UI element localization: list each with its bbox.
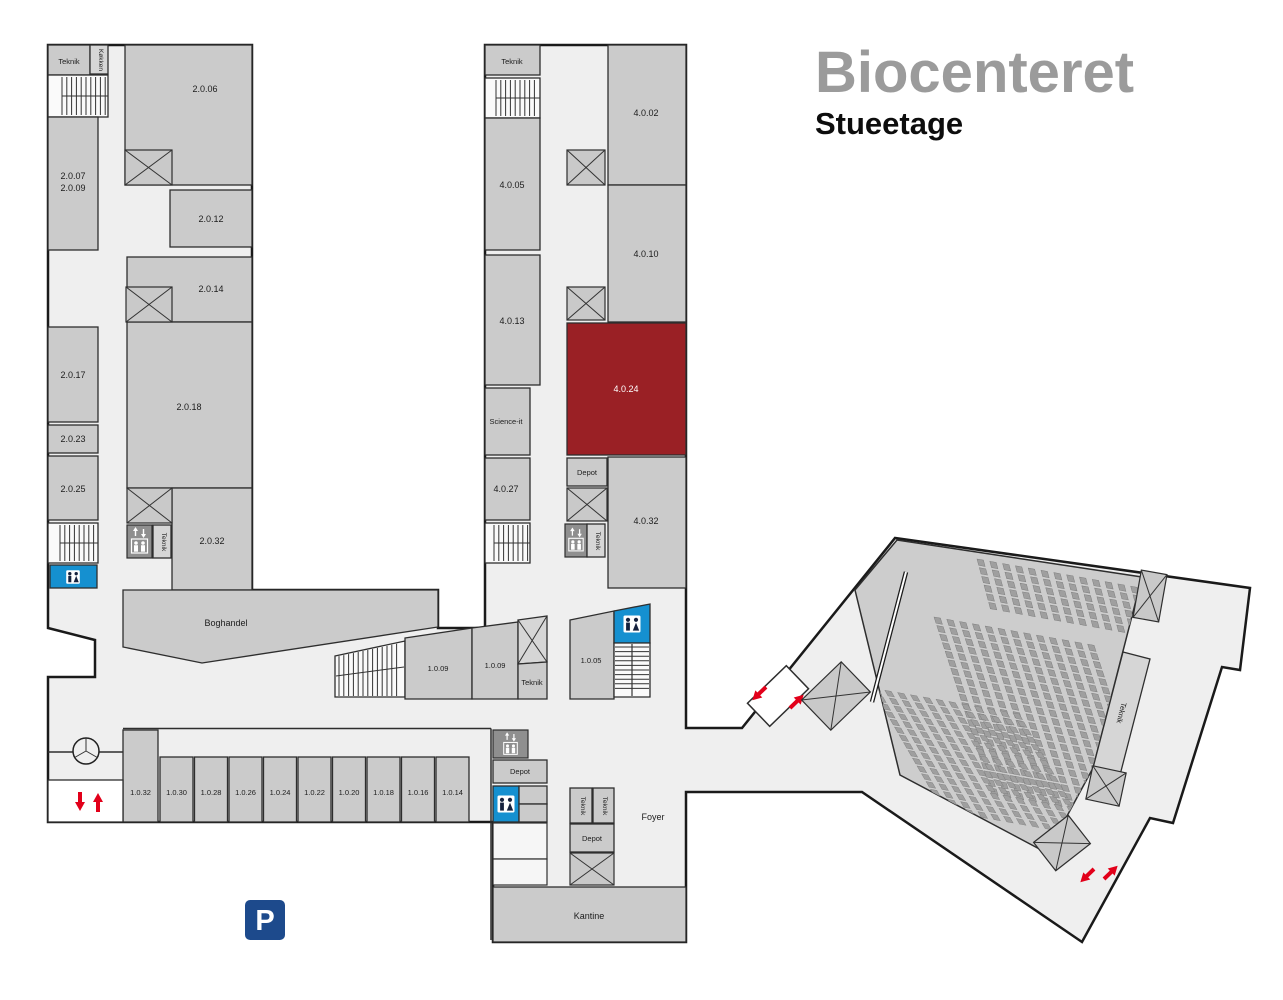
room-label: 1.0.18 xyxy=(373,788,394,797)
label-teknik-band: Teknik xyxy=(521,678,543,687)
label-kokken: Køkken xyxy=(97,49,104,71)
room-small-a xyxy=(519,786,547,804)
label-4005: 4.0.05 xyxy=(499,180,524,190)
room-label: 1.0.28 xyxy=(201,788,222,797)
label-teknik-n2: Teknik xyxy=(501,57,523,66)
room-label: 1.0.14 xyxy=(442,788,463,797)
label-science-it: Science-it xyxy=(490,417,524,426)
room-label: 1.0.24 xyxy=(270,788,291,797)
label-depot-upper: Depot xyxy=(510,767,531,776)
label-1005: 1.0.05 xyxy=(581,656,602,665)
parking-label: P xyxy=(255,905,274,937)
label-2006: 2.0.06 xyxy=(192,84,217,94)
page-title: Biocenteret xyxy=(815,40,1134,105)
floor-plan: 1.0.321.0.301.0.281.0.261.0.241.0.221.0.… xyxy=(0,0,1283,1000)
page-subtitle: Stueetage xyxy=(815,106,963,141)
label-teknik-nw: Teknik xyxy=(58,57,80,66)
label-2025: 2.0.25 xyxy=(60,484,85,494)
label-4024: 4.0.24 xyxy=(613,384,638,394)
label-foyer: Foyer xyxy=(641,812,664,822)
room-small-b xyxy=(519,804,547,822)
label-1009b: 1.0.09 xyxy=(485,661,506,670)
label-4027: 4.0.27 xyxy=(493,484,518,494)
label-4032: 4.0.32 xyxy=(633,516,658,526)
wc-icon xyxy=(624,616,641,633)
room-1005 xyxy=(570,611,614,699)
label-teknik-east-vert: Teknik xyxy=(594,532,601,551)
label-4013: 4.0.13 xyxy=(499,316,524,326)
shaft xyxy=(570,853,614,885)
label-depot-lower: Depot xyxy=(582,834,603,843)
label-depot-east: Depot xyxy=(577,468,598,477)
label-2007: 2.0.07 xyxy=(60,171,85,181)
shaft xyxy=(127,488,172,523)
label-4002: 4.0.02 xyxy=(633,108,658,118)
wc-icon xyxy=(498,796,515,813)
shaft xyxy=(1086,766,1126,806)
room xyxy=(123,730,158,822)
shaft xyxy=(567,150,605,185)
room-empty-a xyxy=(493,823,547,859)
wc-icon xyxy=(66,570,80,584)
label-4010: 4.0.10 xyxy=(633,249,658,259)
label-teknik-c2: Teknik xyxy=(601,797,608,816)
room-label: 1.0.22 xyxy=(304,788,325,797)
label-teknik-c1: Teknik xyxy=(579,797,586,816)
floor-plan-svg: 1.0.321.0.301.0.281.0.261.0.241.0.221.0.… xyxy=(0,0,1283,1000)
shaft xyxy=(567,488,607,521)
room-label: 1.0.32 xyxy=(130,788,151,797)
shaft xyxy=(126,287,172,322)
elevator-south xyxy=(493,730,528,758)
parking-sign: P xyxy=(245,900,285,940)
label-2032: 2.0.32 xyxy=(199,536,224,546)
room-label: 1.0.16 xyxy=(408,788,429,797)
entrance-sw xyxy=(48,780,123,822)
label-2014: 2.0.14 xyxy=(198,284,223,294)
label-2023: 2.0.23 xyxy=(60,434,85,444)
label-2012: 2.0.12 xyxy=(198,214,223,224)
shaft xyxy=(125,150,172,185)
label-boghandel: Boghandel xyxy=(204,618,247,628)
room-label: 1.0.30 xyxy=(166,788,187,797)
shaft xyxy=(567,287,605,320)
label-2009: 2.0.09 xyxy=(60,183,85,193)
label-2017: 2.0.17 xyxy=(60,370,85,380)
room-empty-b xyxy=(493,859,547,885)
room-label: 1.0.20 xyxy=(339,788,360,797)
label-1009a: 1.0.09 xyxy=(428,664,449,673)
label-teknik-west-vert: Teknik xyxy=(160,533,167,552)
label-2018: 2.0.18 xyxy=(176,402,201,412)
room-label: 1.0.26 xyxy=(235,788,256,797)
label-kantine: Kantine xyxy=(574,911,605,921)
